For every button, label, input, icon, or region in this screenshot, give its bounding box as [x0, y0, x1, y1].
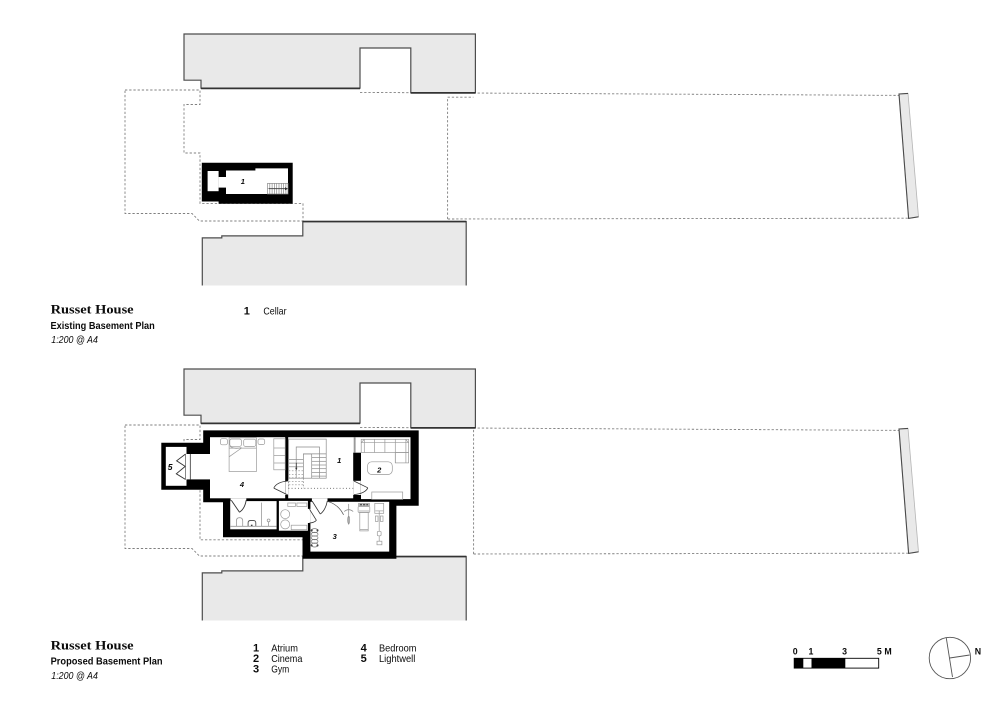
svg-text:Existing Basement Plan: Existing Basement Plan — [51, 321, 155, 332]
svg-text:Russet House: Russet House — [51, 303, 134, 317]
svg-text:1: 1 — [241, 177, 245, 186]
svg-text:2: 2 — [376, 465, 382, 474]
svg-text:1: 1 — [337, 456, 341, 465]
svg-text:Gym: Gym — [271, 665, 289, 676]
svg-text:1: 1 — [244, 305, 250, 317]
svg-text:5: 5 — [361, 653, 367, 665]
svg-text:Russet House: Russet House — [51, 639, 134, 653]
svg-text:N: N — [975, 647, 981, 657]
svg-text:5: 5 — [168, 462, 173, 472]
svg-text:1: 1 — [809, 647, 814, 657]
svg-text:Atrium: Atrium — [271, 643, 298, 654]
svg-text:Cellar: Cellar — [263, 306, 287, 317]
svg-text:3: 3 — [253, 664, 259, 676]
svg-text:0: 0 — [793, 647, 798, 657]
svg-text:1:200 @ A4: 1:200 @ A4 — [51, 671, 98, 682]
svg-text:3: 3 — [842, 647, 847, 657]
svg-text:Cinema: Cinema — [271, 654, 302, 665]
svg-text:5: 5 — [877, 647, 882, 657]
svg-text:1:200 @ A4: 1:200 @ A4 — [51, 335, 98, 346]
svg-text:Lightwell: Lightwell — [379, 654, 415, 665]
svg-text:M: M — [884, 647, 891, 657]
svg-text:4: 4 — [239, 480, 245, 489]
svg-text:Bedroom: Bedroom — [379, 643, 416, 654]
svg-text:Proposed Basement Plan: Proposed Basement Plan — [51, 657, 163, 668]
